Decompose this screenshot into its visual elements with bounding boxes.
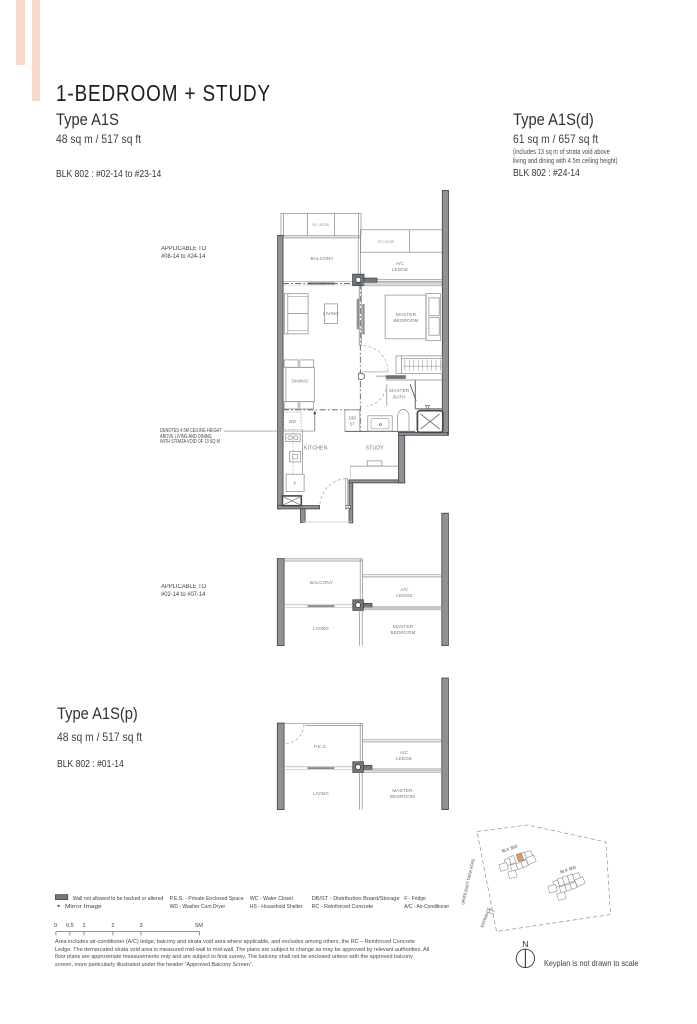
svg-text:0: 0	[54, 923, 57, 929]
svg-text:DB/ST - Distribution Board/Sto: DB/ST - Distribution Board/Storage	[312, 896, 400, 902]
svg-text:ST: ST	[349, 422, 355, 427]
svg-text:LIVING: LIVING	[313, 791, 329, 796]
svg-text:BEDROOM: BEDROOM	[391, 630, 416, 635]
svg-text:5M: 5M	[195, 923, 203, 929]
svg-text:A/C: A/C	[396, 261, 405, 266]
svg-text:MASTER: MASTER	[393, 624, 414, 629]
svg-text:N: N	[522, 939, 528, 949]
svg-text:A/C: A/C	[400, 587, 409, 592]
svg-text:STUDY: STUDY	[366, 446, 385, 452]
svg-text:BLK 802: BLK 802	[501, 843, 519, 853]
svg-text:RC LEDGE: RC LEDGE	[313, 223, 330, 227]
svg-text:WC - Water Closet: WC - Water Closet	[250, 896, 293, 902]
svg-text:LEDGE: LEDGE	[396, 756, 412, 761]
svg-text:LEDGE: LEDGE	[392, 267, 408, 272]
svg-text:LIVING: LIVING	[323, 311, 339, 316]
svg-text:0.5: 0.5	[66, 923, 74, 929]
svg-text:F - Fridge: F - Fridge	[404, 896, 426, 902]
svg-text:MASTER: MASTER	[392, 788, 413, 793]
svg-text:2: 2	[111, 923, 114, 929]
svg-text:WD - Washer Cum Dryer: WD - Washer Cum Dryer	[170, 904, 226, 910]
svg-text:P.E.S. - Private Enclosed Spac: P.E.S. - Private Enclosed Space	[170, 896, 244, 902]
svg-text:MASTER: MASTER	[389, 388, 410, 393]
svg-text:A/C: A/C	[400, 750, 409, 755]
svg-text:RC - Reinforced Concrete: RC - Reinforced Concrete	[312, 904, 374, 910]
svg-text:BALCONY: BALCONY	[310, 580, 334, 585]
svg-text:BALCONY: BALCONY	[310, 256, 334, 261]
svg-text:WD: WD	[289, 419, 296, 424]
svg-text:ENTRANCE: ENTRANCE	[480, 907, 492, 928]
svg-text:1: 1	[82, 923, 85, 929]
svg-text:Mirror Image: Mirror Image	[65, 904, 102, 910]
svg-text:A/C - Air-Conditioner: A/C - Air-Conditioner	[404, 904, 449, 910]
svg-text:Wall not allowed to be hacked: Wall not allowed to be hacked or altered	[73, 896, 164, 902]
svg-text:BLK 800: BLK 800	[559, 864, 577, 874]
svg-text:UPPER BUKIT TIMAH ROAD: UPPER BUKIT TIMAH ROAD	[460, 858, 475, 905]
svg-text:F: F	[294, 481, 297, 486]
svg-text:HS - Household Shelter: HS - Household Shelter	[250, 904, 303, 910]
svg-text:3: 3	[139, 923, 142, 929]
svg-text:BEDROOM: BEDROOM	[394, 318, 419, 323]
svg-text:BATH: BATH	[393, 394, 406, 399]
svg-text:LEDGE: LEDGE	[396, 593, 412, 598]
svg-text:BEDROOM: BEDROOM	[390, 794, 415, 799]
svg-text:DINING: DINING	[291, 378, 308, 383]
svg-text:KITCHEN: KITCHEN	[304, 446, 328, 452]
svg-text:DB/: DB/	[349, 416, 357, 421]
svg-text:MASTER: MASTER	[396, 312, 417, 317]
svg-text:RC LEDGE: RC LEDGE	[378, 240, 395, 244]
svg-text:P.E.S.: P.E.S.	[314, 744, 327, 749]
svg-text:LIVING: LIVING	[313, 626, 329, 631]
